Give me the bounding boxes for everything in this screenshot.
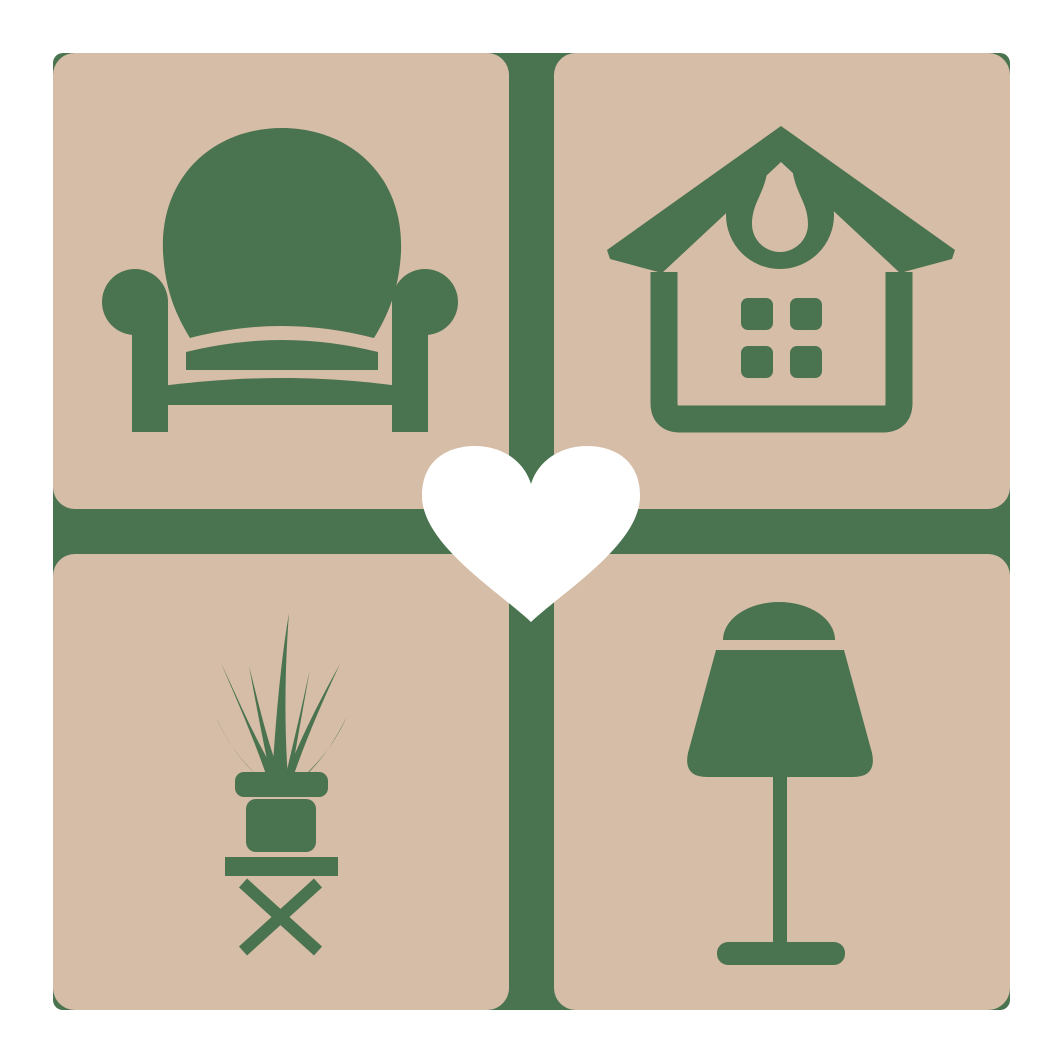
lamp-shade <box>687 650 873 777</box>
lamp-stem <box>773 777 787 947</box>
window-pane <box>790 298 822 330</box>
plant-pot-body <box>246 799 316 852</box>
home-furnishings-logo <box>0 0 1063 1063</box>
window-pane <box>741 298 773 330</box>
tile-bottom-right <box>554 554 1010 1010</box>
tile-bottom-left <box>53 554 509 1010</box>
tile-top-right-background <box>554 53 1010 509</box>
plant-pot-rim <box>235 772 328 797</box>
lamp-base <box>717 942 845 965</box>
armchair-back <box>163 128 401 338</box>
window-pane <box>741 346 773 378</box>
tile-top-left <box>53 53 509 509</box>
logo-canvas <box>0 0 1063 1063</box>
plant-stool-top <box>225 857 338 876</box>
tile-top-right <box>554 53 1010 509</box>
armchair-right-leg <box>392 300 428 432</box>
armchair-left-leg <box>132 300 168 432</box>
window-pane <box>790 346 822 378</box>
